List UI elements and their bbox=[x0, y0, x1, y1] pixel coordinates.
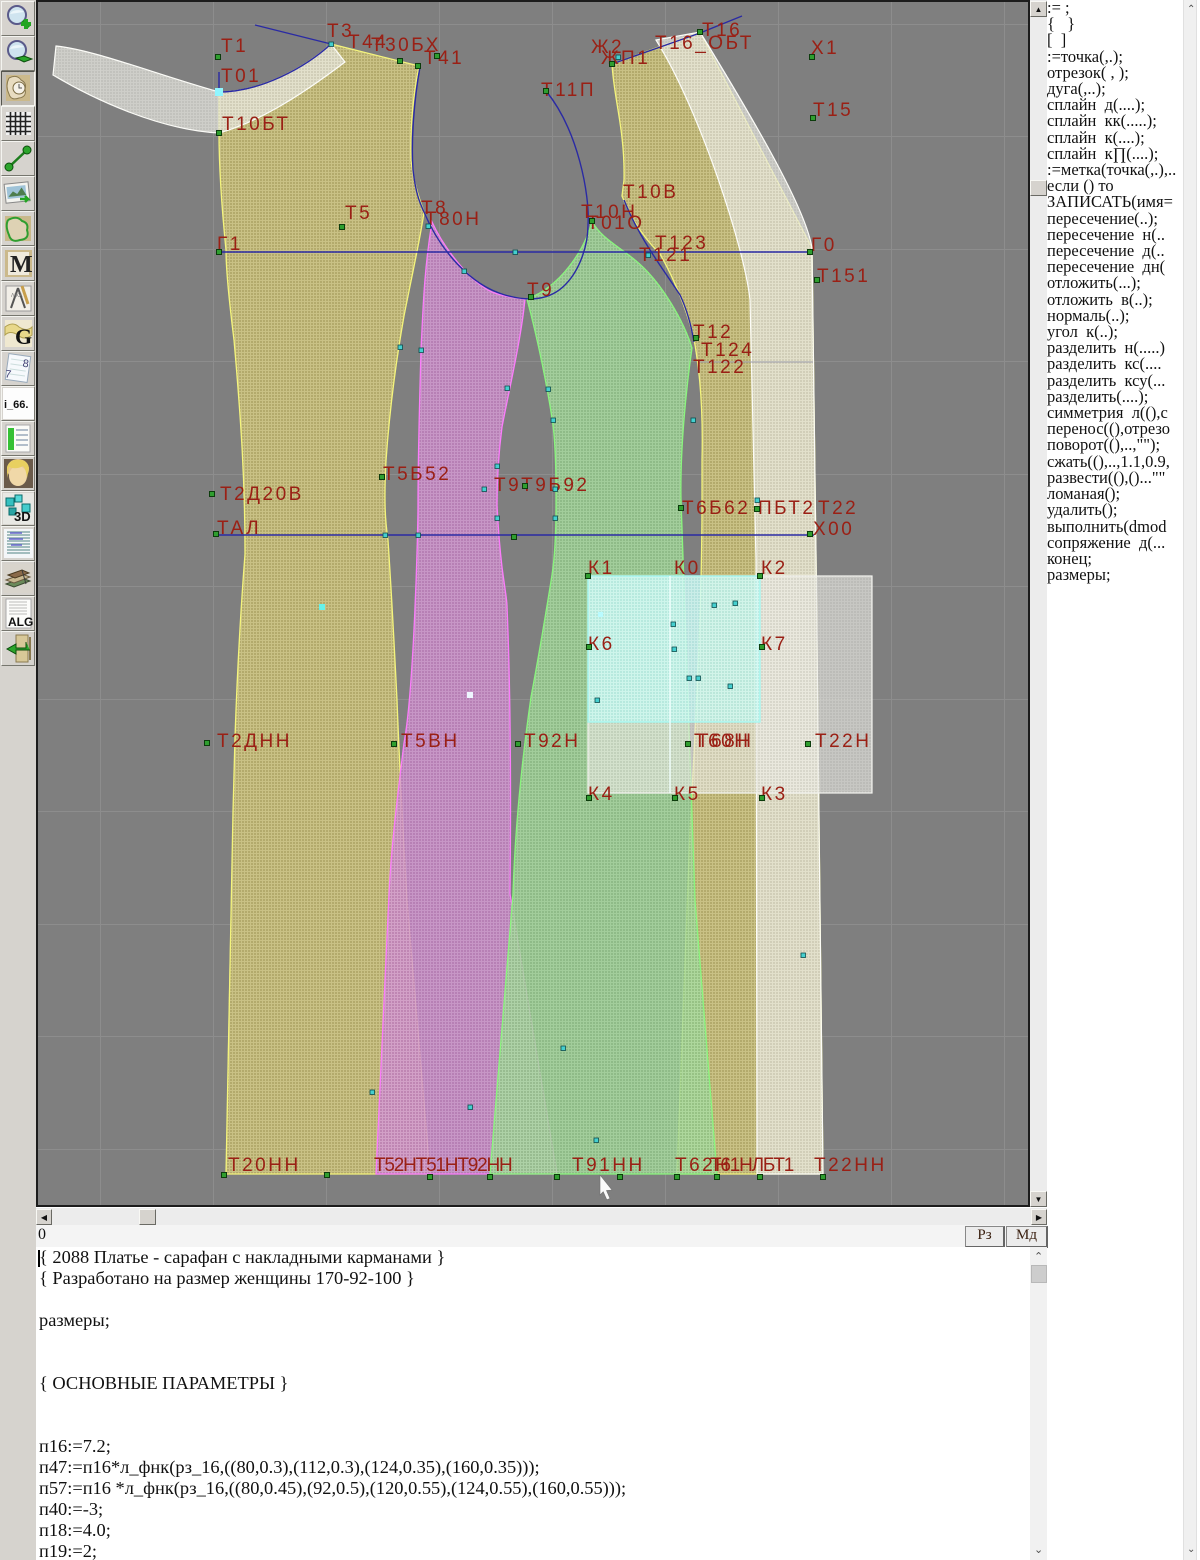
svg-text:Т20НН: Т20НН bbox=[228, 1155, 301, 1176]
svg-text:Т68Н: Т68Н bbox=[697, 731, 753, 752]
svg-text:Т6Б62: Т6Б62 bbox=[682, 498, 750, 519]
svg-text:Т2Д20В: Т2Д20В bbox=[220, 484, 304, 505]
svg-text:ЖП1: ЖП1 bbox=[601, 48, 650, 69]
svg-text:К2: К2 bbox=[761, 558, 788, 579]
svg-text:К1: К1 bbox=[588, 558, 615, 579]
svg-text:Т10БТ: Т10БТ bbox=[222, 114, 290, 135]
svg-text:Т16_ОБТ: Т16_ОБТ bbox=[655, 33, 754, 54]
svg-text:Т22: Т22 bbox=[818, 498, 858, 519]
svg-text:ALG: ALG bbox=[8, 615, 33, 629]
svg-text:Т122: Т122 bbox=[693, 357, 746, 378]
svg-text:Х1: Х1 bbox=[811, 38, 839, 59]
svg-text:Т15: Т15 bbox=[813, 100, 853, 121]
svg-text:Т91НН: Т91НН bbox=[572, 1155, 645, 1176]
svg-text:К0: К0 bbox=[674, 558, 701, 579]
svg-text:Т41: Т41 bbox=[424, 48, 464, 69]
svg-text:Т5Б52: Т5Б52 bbox=[383, 464, 451, 485]
svg-text:Т61НЛБТ1: Т61НЛБТ1 bbox=[710, 1155, 794, 1176]
svg-text:К4: К4 bbox=[588, 784, 615, 805]
svg-text:Т5ВН: Т5ВН bbox=[401, 731, 460, 752]
svg-text:Т5: Т5 bbox=[345, 203, 372, 224]
svg-text:Т2ДНН: Т2ДНН bbox=[217, 731, 292, 752]
svg-text:i_66.: i_66. bbox=[4, 399, 28, 411]
svg-text:ΛΙΚΑ: ΛΙΚΑ bbox=[11, 293, 23, 299]
svg-text:ТАЛ: ТАЛ bbox=[217, 518, 261, 539]
svg-text:Т22НН: Т22НН bbox=[814, 1155, 887, 1176]
svg-text:Т1: Т1 bbox=[221, 36, 248, 57]
svg-text:ПБТ2: ПБТ2 bbox=[758, 498, 815, 519]
svg-text:Т11П: Т11П bbox=[541, 80, 596, 101]
svg-text:3D: 3D bbox=[14, 509, 31, 524]
svg-text:G: G bbox=[15, 324, 32, 349]
svg-text:Г0: Г0 bbox=[811, 235, 837, 256]
svg-text:Т9Т9Б92: Т9Т9Б92 bbox=[494, 475, 589, 496]
svg-text:Т01: Т01 bbox=[221, 66, 261, 87]
svg-text:Т10В: Т10В bbox=[623, 182, 678, 203]
svg-text:M: M bbox=[10, 252, 33, 278]
svg-text:Х00: Х00 bbox=[813, 519, 854, 540]
svg-text:Т151: Т151 bbox=[817, 266, 870, 287]
svg-text:Т92Н: Т92Н bbox=[524, 731, 580, 752]
svg-text:Т01О: Т01О bbox=[587, 213, 645, 234]
svg-text:Т80Н: Т80Н bbox=[425, 209, 481, 230]
svg-text:К5: К5 bbox=[674, 784, 701, 805]
svg-text:К3: К3 bbox=[761, 784, 788, 805]
svg-text:Т22Н: Т22Н bbox=[815, 731, 871, 752]
svg-text:Т52НТ51НТ92НН: Т52НТ51НТ92НН bbox=[374, 1155, 512, 1176]
